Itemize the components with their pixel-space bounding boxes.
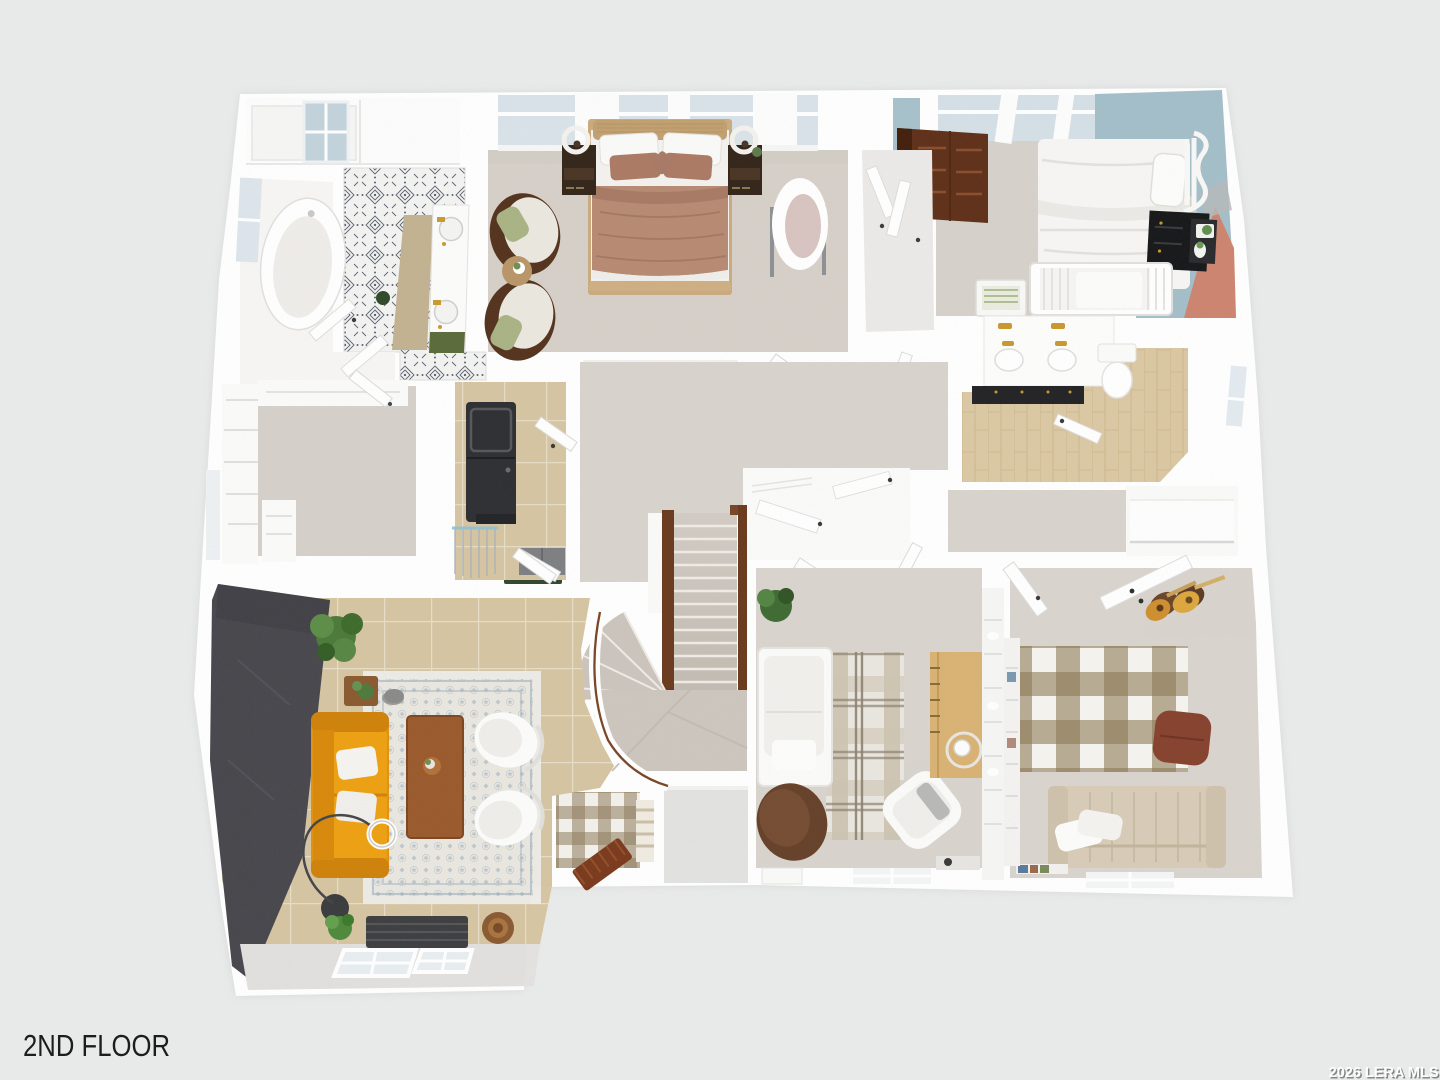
svg-text:2ND FLOOR: 2ND FLOOR (23, 1028, 170, 1063)
svg-text:2026 LERA MLS: 2026 LERA MLS (1329, 1065, 1439, 1080)
